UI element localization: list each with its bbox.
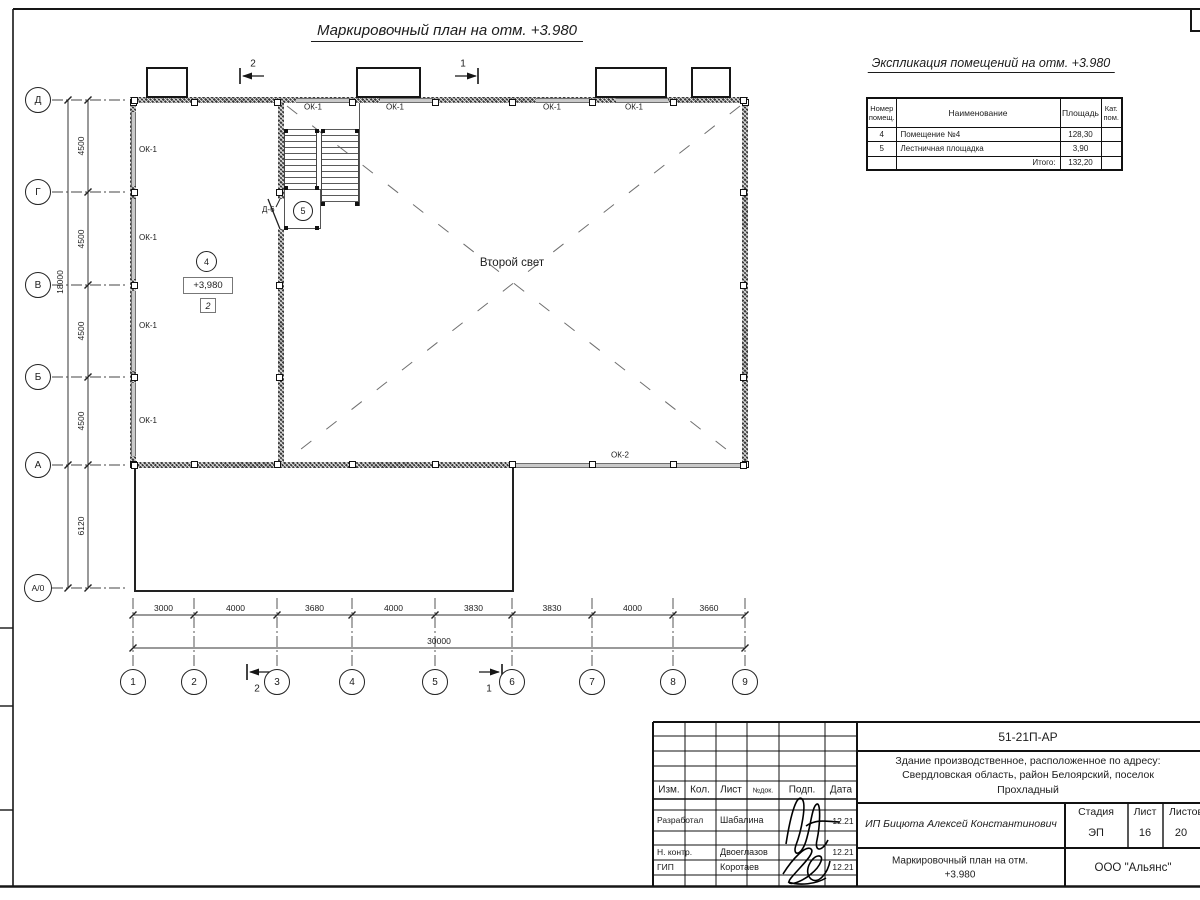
wall-pilaster-marker — [589, 99, 596, 106]
wall-pilaster-marker — [740, 189, 747, 196]
wall-pilaster-marker — [131, 282, 138, 289]
door-mark-label: Д-6 — [262, 205, 275, 214]
wall-pilaster-marker — [349, 461, 356, 468]
wall-pilaster-marker — [349, 99, 356, 106]
dimension-total: 18000 — [55, 270, 65, 294]
drawing-sheet: { "sheet": { "plan_title": "Маркировочны… — [0, 0, 1200, 900]
category-mark: 2 — [200, 298, 216, 313]
window-mark-label: ОК-2 — [611, 451, 629, 460]
column-axis-bubble: 2 — [181, 669, 207, 695]
col-header-category: Кат.пом. — [1101, 98, 1122, 127]
person-role: ГИП — [657, 862, 674, 872]
wall-projection — [356, 67, 421, 98]
wall-projection — [595, 67, 667, 98]
explication-title: Экспликация помещений на отм. +3.980 — [868, 56, 1115, 73]
column-axis-bubble: 6 — [499, 669, 525, 695]
project-address: Здание производственное, расположенное п… — [895, 755, 1160, 767]
wall-projection — [691, 67, 731, 98]
stair-corner-dot — [284, 129, 288, 133]
window-mark-label: ОК-1 — [139, 321, 157, 330]
stage-value: ЭП — [1088, 827, 1104, 839]
column-axis-bubble: 1 — [120, 669, 146, 695]
dimension-annex: 6120 — [76, 517, 86, 536]
dimension-value: 4500 — [76, 412, 86, 431]
row-axis-bubble: Б — [25, 364, 51, 390]
stair-flight-right — [321, 129, 359, 206]
table-total-row: Итого: 132,20 — [867, 156, 1122, 170]
second-light-label: Второй свет — [480, 257, 544, 269]
annex-outline — [134, 468, 514, 592]
stair-flight-left — [284, 129, 317, 189]
doc-number: 51-21П-АР — [998, 730, 1057, 744]
window-mark-label: ОК-1 — [304, 103, 322, 112]
explication-table: Номерпомещ. Наименование Площадь Кат.пом… — [866, 97, 1123, 171]
wall-pilaster-marker — [432, 99, 439, 106]
dimension-value: 4000 — [226, 603, 245, 613]
stage-header: Стадия — [1078, 806, 1114, 818]
dimension-value: 4000 — [623, 603, 642, 613]
person-date: 12.21 — [832, 862, 853, 872]
section-mark-2-bottom: 2 — [254, 684, 260, 695]
wall-partition-axis3 — [278, 229, 284, 462]
col-header-list: Лист — [720, 785, 742, 796]
column-axis-bubble: 3 — [264, 669, 290, 695]
client-name: ИП Бицюта Алексей Константинович — [865, 818, 1057, 830]
wall-pilaster-marker — [740, 462, 747, 469]
table-row: 5 Лестничная площадка 3,90 — [867, 141, 1122, 156]
wall-pilaster-marker — [432, 461, 439, 468]
row-axis-bubble: Д — [25, 87, 51, 113]
dimension-value: 4500 — [76, 322, 86, 341]
stair-corner-dot — [321, 129, 325, 133]
person-name: Шабалина — [720, 815, 763, 825]
row-axis-bubble: Г — [25, 179, 51, 205]
wall-pilaster-marker — [740, 374, 747, 381]
wall-pilaster-marker — [509, 99, 516, 106]
window-ok1-band — [131, 383, 136, 456]
room-number-badge: 4 — [196, 251, 217, 272]
project-address: Прохладный — [997, 784, 1059, 796]
col-header-podp: Подп. — [789, 785, 816, 796]
stair-corner-dot — [284, 226, 288, 230]
wall-pilaster-marker — [274, 99, 281, 106]
wall-pilaster-marker — [131, 97, 138, 104]
window-mark-label: ОК-1 — [139, 145, 157, 154]
stair-corner-dot — [315, 226, 319, 230]
wall-pilaster-marker — [274, 461, 281, 468]
plan-title: Маркировочный план на отм. +3.980 — [311, 22, 583, 42]
company-name: ООО "Альянс" — [1095, 862, 1172, 874]
person-name: Двоеглазов — [720, 847, 768, 857]
wall-pilaster-marker — [191, 461, 198, 468]
row-axis-bubble: В — [25, 272, 51, 298]
stair-corner-dot — [315, 186, 319, 190]
window-mark-label: ОК-1 — [625, 103, 643, 112]
col-header-kol: Кол. — [690, 785, 710, 796]
sheets-header: Листов — [1169, 806, 1200, 818]
wall-pilaster-marker — [670, 99, 677, 106]
person-role: Н. контр. — [657, 847, 692, 857]
wall-pilaster-marker — [191, 99, 198, 106]
stair-corner-dot — [315, 129, 319, 133]
col-header-name: Наименование — [896, 98, 1060, 127]
project-address: Свердловская область, район Белоярский, … — [902, 769, 1154, 781]
stair-number-badge: 5 — [293, 201, 313, 221]
dimension-value: 3830 — [464, 603, 483, 613]
drawing-name: Маркировочный план на отм. — [892, 856, 1028, 867]
col-header-area: Площадь — [1060, 98, 1101, 127]
dimension-value: 4000 — [384, 603, 403, 613]
window-ok1-band — [131, 112, 136, 186]
wall-pilaster-marker — [670, 461, 677, 468]
wall-pilaster-marker — [131, 462, 138, 469]
sheets-value: 20 — [1175, 827, 1187, 839]
person-date: 12.21 — [832, 847, 853, 857]
stair-corner-dot — [321, 202, 325, 206]
person-role: Разработал — [657, 815, 703, 825]
wall-pilaster-marker — [276, 282, 283, 289]
elevation-mark: +3,980 — [183, 277, 233, 294]
person-name: Коротаев — [720, 862, 759, 872]
dimension-value: 3830 — [543, 603, 562, 613]
column-axis-bubble: 4 — [339, 669, 365, 695]
wall-pilaster-marker — [131, 189, 138, 196]
signature-gip — [783, 848, 830, 884]
window-mark-label: ОК-1 — [139, 416, 157, 425]
drawing-name: +3.980 — [945, 870, 976, 881]
dimension-value: 4500 — [76, 137, 86, 156]
col-header-izm: Изм. — [658, 785, 679, 796]
window-ok1-band — [131, 199, 136, 279]
section-mark-1-bottom: 1 — [486, 684, 492, 695]
window-ok1-band — [131, 291, 136, 371]
stair-corner-dot — [355, 129, 359, 133]
wall-pilaster-marker — [509, 461, 516, 468]
wall-pilaster-marker — [276, 189, 283, 196]
wall-pilaster-marker — [589, 461, 596, 468]
row-axis-bubble: А/0 — [24, 574, 52, 602]
window-mark-label: ОК-1 — [386, 103, 404, 112]
wall-pilaster-marker — [276, 374, 283, 381]
wall-partition-axis3 — [278, 103, 284, 199]
sheet-header: Лист — [1134, 806, 1157, 818]
window-mark-label: ОК-1 — [139, 233, 157, 242]
row-axis-bubble: А — [25, 452, 51, 478]
window-ok2-band — [514, 463, 742, 468]
window-mark-label: ОК-1 — [543, 103, 561, 112]
column-axis-bubble: 5 — [422, 669, 448, 695]
sheet-value: 16 — [1139, 827, 1151, 839]
dimension-total: 30000 — [427, 636, 451, 646]
section-mark-1-top: 1 — [460, 59, 466, 70]
column-axis-bubble: 7 — [579, 669, 605, 695]
stair-corner-dot — [284, 186, 288, 190]
wall-projection — [146, 67, 188, 98]
dimension-value: 3680 — [305, 603, 324, 613]
stair-corner-dot — [355, 202, 359, 206]
table-row: 4 Помещение №4 128,30 — [867, 127, 1122, 141]
wall-pilaster-marker — [740, 282, 747, 289]
format-stamp-box — [1191, 9, 1200, 31]
col-header-number: Номерпомещ. — [867, 98, 896, 127]
dimension-value: 3000 — [154, 603, 173, 613]
wall-pilaster-marker — [131, 374, 138, 381]
col-header-ndok: №док. — [753, 788, 774, 795]
col-header-data: Дата — [830, 785, 852, 796]
column-axis-bubble: 9 — [732, 669, 758, 695]
dimension-value: 4500 — [76, 229, 86, 248]
section-mark-2-top: 2 — [250, 59, 256, 70]
person-date: 12.21 — [832, 816, 853, 826]
dimension-value: 3660 — [700, 603, 719, 613]
column-axis-bubble: 8 — [660, 669, 686, 695]
wall-pilaster-marker — [740, 97, 747, 104]
